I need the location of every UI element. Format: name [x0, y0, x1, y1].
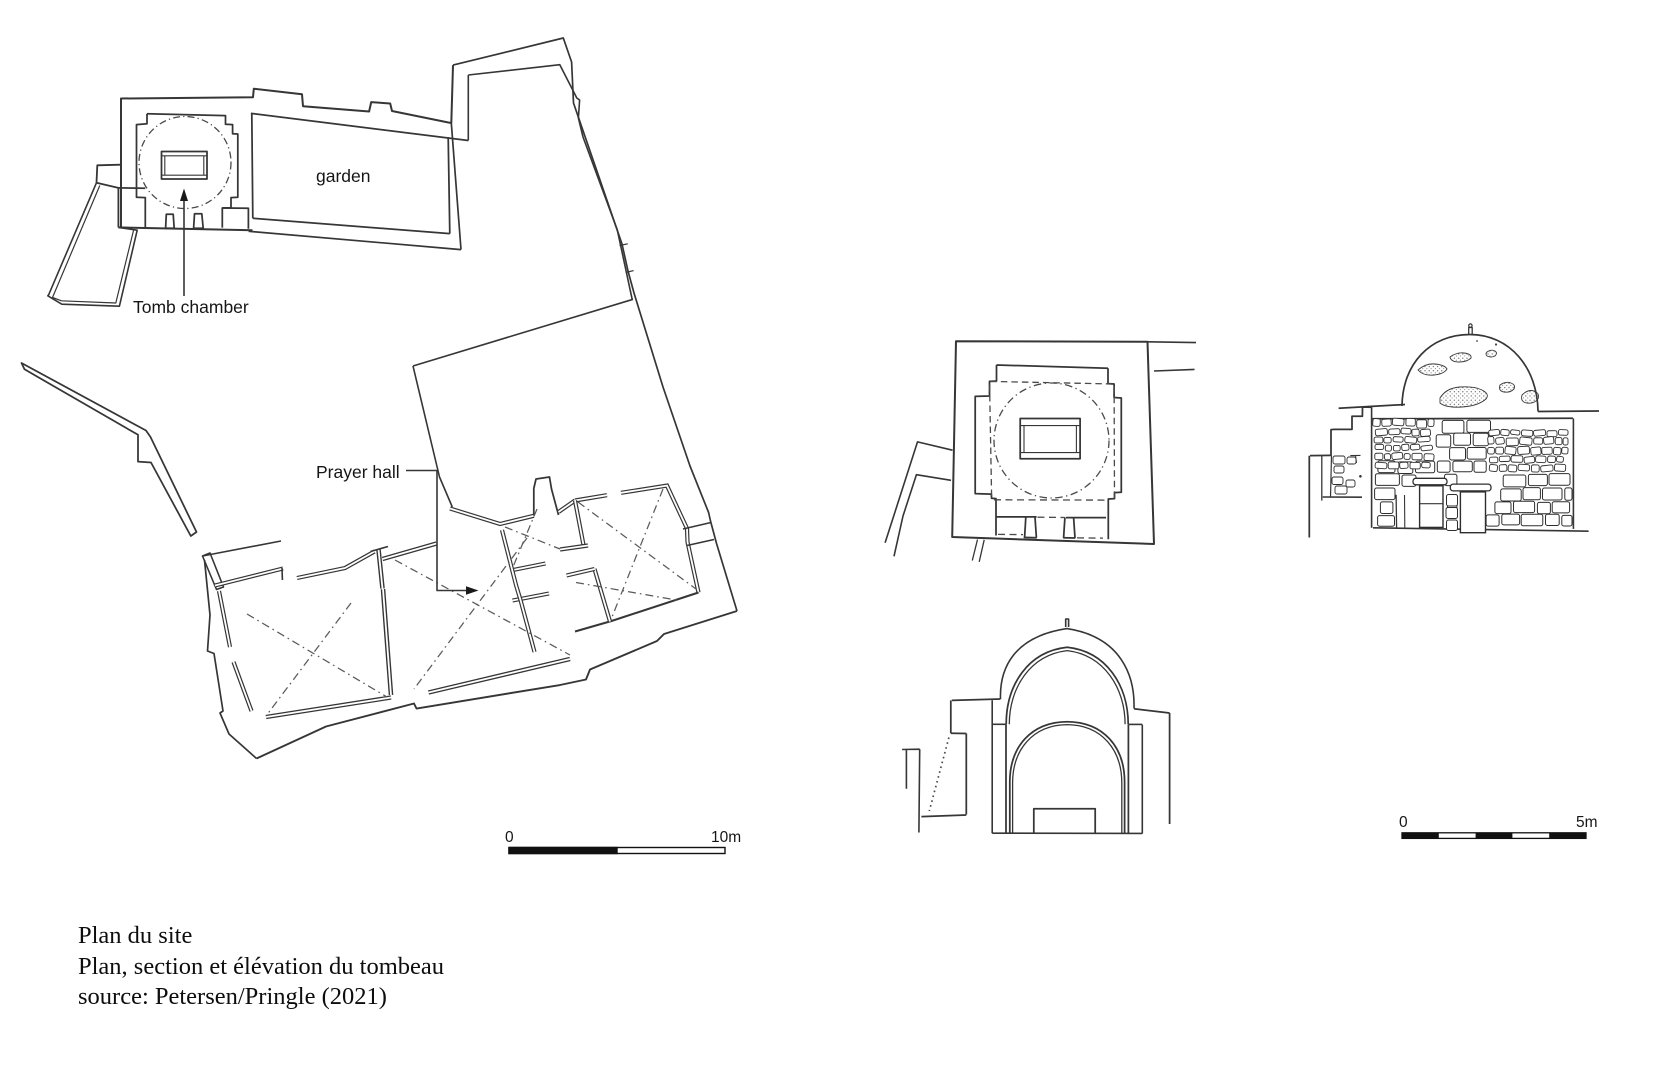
svg-text:10m: 10m [711, 829, 741, 846]
svg-text:Prayer hall: Prayer hall [316, 462, 400, 482]
svg-text:0: 0 [1399, 814, 1408, 831]
svg-text:5m: 5m [1576, 814, 1598, 831]
svg-text:Tomb chamber: Tomb chamber [133, 297, 249, 317]
svg-text:garden: garden [316, 166, 371, 186]
svg-text:0: 0 [505, 829, 514, 846]
